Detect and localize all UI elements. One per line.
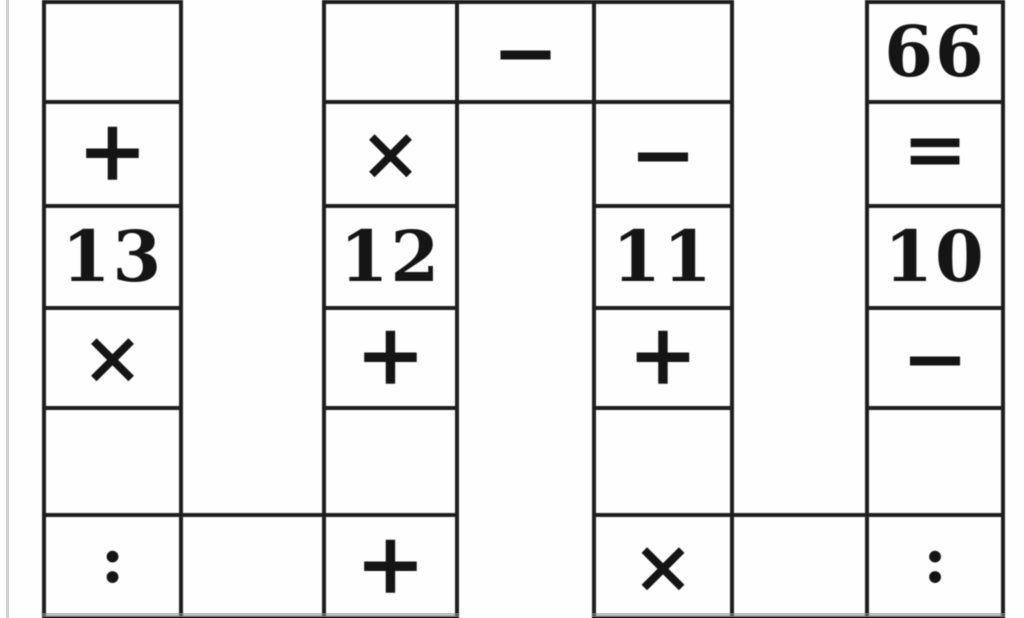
grid-cell-r6c3: + xyxy=(322,513,459,618)
grid-cell-r1c3 xyxy=(322,0,459,104)
cell-number: 12 xyxy=(340,222,441,292)
grid-cell-r1c5 xyxy=(592,0,734,104)
grid-cell-r5c3 xyxy=(322,406,459,517)
grid-cell-r6c7: : xyxy=(865,513,1005,618)
grid-cell-r6c6 xyxy=(730,513,869,618)
puzzle-grid: −66+×−=13121110×++−:+×: xyxy=(0,0,1024,618)
grid-cell-r3c3: 12 xyxy=(322,204,459,310)
grid-cell-r2c7: = xyxy=(865,100,1005,208)
cell-number: 13 xyxy=(62,222,163,292)
cell-operator: : xyxy=(101,529,125,593)
grid-cell-r4c3: + xyxy=(322,306,459,410)
grid-cell-r2c5: − xyxy=(592,100,734,208)
grid-cell-r6c2 xyxy=(179,513,326,618)
cell-operator: × xyxy=(359,117,421,191)
grid-cell-r4c7: − xyxy=(865,306,1005,410)
grid-cell-r3c7: 10 xyxy=(865,204,1005,310)
cell-operator: − xyxy=(901,318,968,398)
cell-number: 10 xyxy=(884,222,985,292)
cell-operator: = xyxy=(902,111,967,189)
grid-cell-r5c1 xyxy=(42,406,183,517)
grid-cell-r6c5: × xyxy=(592,513,734,618)
grid-cell-r5c5 xyxy=(592,406,734,517)
cell-operator: + xyxy=(355,313,425,397)
cell-operator: + xyxy=(77,109,147,193)
cell-operator: + xyxy=(628,313,698,397)
grid-bottom-border-cut xyxy=(592,613,1005,617)
scanned-puzzle-page: −66+×−=13121110×++−:+×: xyxy=(0,0,1024,618)
cell-operator: − xyxy=(492,12,559,92)
grid-cell-r4c1: × xyxy=(42,306,183,410)
grid-bottom-border-cut xyxy=(42,613,459,617)
cell-number: 66 xyxy=(884,17,985,87)
grid-cell-r4c5: + xyxy=(592,306,734,410)
grid-cell-r6c1: : xyxy=(42,513,183,618)
cell-number: 11 xyxy=(612,222,713,292)
cell-operator: × xyxy=(632,530,694,604)
grid-cell-r1c7: 66 xyxy=(865,0,1005,104)
grid-cell-r2c3: × xyxy=(322,100,459,208)
grid-cell-r2c1: + xyxy=(42,100,183,208)
scan-edge-artifact xyxy=(6,0,9,618)
grid-cell-r3c5: 11 xyxy=(592,204,734,310)
grid-cell-r1c1 xyxy=(42,0,183,104)
cell-operator: − xyxy=(629,114,696,194)
cell-operator: : xyxy=(923,529,947,593)
grid-cell-r3c1: 13 xyxy=(42,204,183,310)
grid-cell-r5c7 xyxy=(865,406,1005,517)
cell-operator: + xyxy=(355,522,425,606)
grid-cell-r1c4: − xyxy=(455,0,596,104)
cell-operator: × xyxy=(81,321,143,395)
